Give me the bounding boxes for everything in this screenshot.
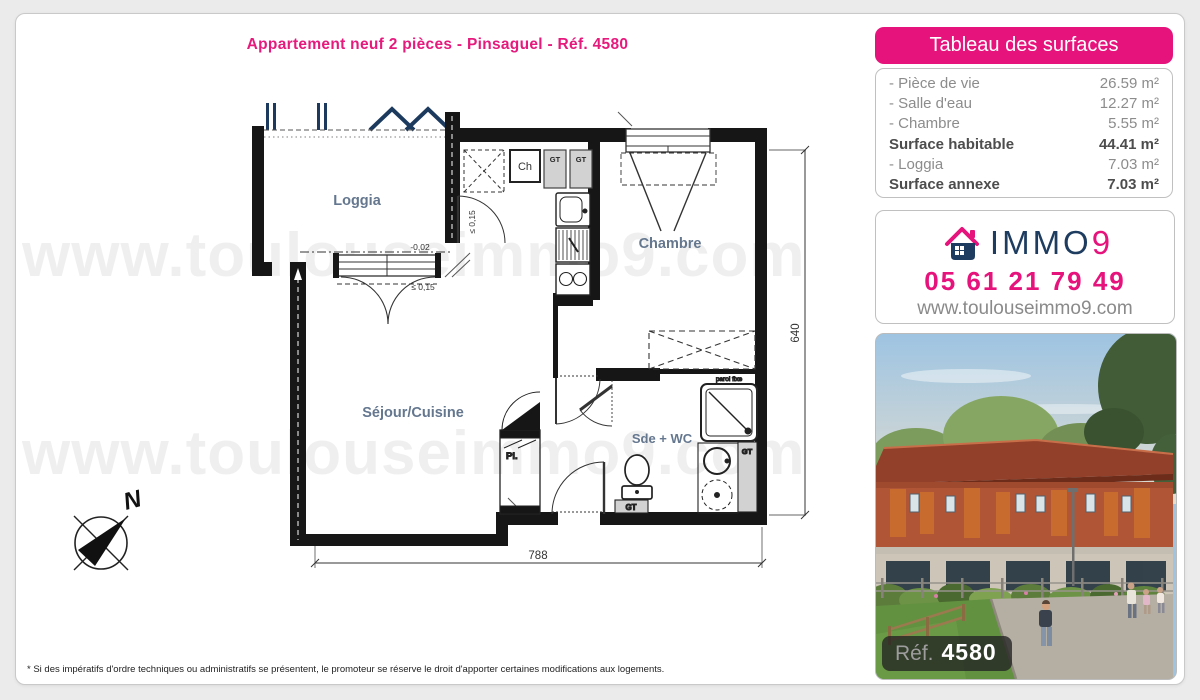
surface-row-total-habitable: Surface habitable 44.41 m² (876, 135, 1172, 155)
surface-row-value: 26.59 m² (1100, 74, 1159, 94)
north-label: N (121, 488, 145, 516)
room-label-sde: Sde + WC (632, 431, 693, 446)
surface-row-label: - Loggia (889, 155, 943, 175)
entry-hall-door (458, 196, 505, 243)
surface-row-label: - Chambre (889, 114, 960, 134)
seuil-label-vertical: ≤ 0,15 (467, 210, 477, 234)
agency-logo: IMMO9 (940, 223, 1110, 263)
corridor-doors (556, 376, 612, 426)
ref-number: 4580 (942, 639, 997, 666)
surface-row-label: Surface habitable (889, 135, 1014, 155)
surface-row-value: 7.03 m² (1107, 175, 1159, 195)
agency-phone: 05 61 21 79 49 (924, 266, 1126, 297)
surface-row-total-annexe: Surface annexe 7.03 m² (876, 175, 1172, 195)
seuil-label-horizontal: ≤ 0,15 (411, 282, 435, 292)
pl-label: Pl. (506, 451, 518, 462)
gt-label-2: GT (576, 155, 587, 164)
house-logo-icon (940, 223, 984, 263)
dim-height-label: 640 (790, 323, 802, 342)
level-label: -0,02 (410, 242, 430, 252)
ch-label: Ch (518, 161, 532, 173)
agency-website: www.toulouseimmo9.com (917, 298, 1132, 320)
surface-row-value: 7.03 m² (1108, 155, 1159, 175)
building-photo-render (876, 334, 1176, 679)
entrance-door (552, 462, 604, 514)
surface-row-label: - Salle d'eau (889, 94, 972, 114)
kitchen-fixtures (556, 193, 590, 295)
surface-row-label: Surface annexe (889, 175, 1000, 195)
page-title: Appartement neuf 2 pièces - Pinsaguel - … (15, 36, 860, 54)
surface-row: - Loggia 7.03 m² (876, 155, 1172, 175)
wall-axis-lines (298, 116, 452, 540)
surface-row-value: 5.55 m² (1108, 114, 1159, 134)
dim-width-label: 788 (528, 550, 547, 562)
surface-row: - Chambre 5.55 m² (876, 114, 1172, 134)
surfaces-table-header: Tableau des surfaces (875, 27, 1173, 64)
footnote-text: * Si des impératifs d'ordre techniques o… (27, 664, 664, 675)
surface-row: - Pièce de vie 26.59 m² (876, 74, 1172, 94)
surfaces-table: - Pièce de vie 26.59 m² - Salle d'eau 12… (875, 68, 1173, 198)
surface-row: - Salle d'eau 12.27 m² (876, 94, 1172, 114)
paroi-fixe-label: paroi fixe (716, 376, 743, 383)
compass-icon: N (68, 488, 158, 573)
gt-label-4: GT (625, 503, 636, 512)
brand-immo-text: IMMO (990, 224, 1092, 262)
surface-row-label: - Pièce de vie (889, 74, 980, 94)
agency-card: IMMO9 05 61 21 79 49 www.toulouseimmo9.c… (875, 210, 1175, 324)
surface-row-value: 44.41 m² (1099, 135, 1159, 155)
gt-label-1: GT (550, 155, 561, 164)
surface-row-value: 12.27 m² (1100, 94, 1159, 114)
closet-pl: Pl. (500, 392, 540, 514)
ref-badge: Réf. 4580 (882, 636, 1012, 671)
gt-label-3: GT (742, 447, 753, 456)
brand-9-text: 9 (1092, 224, 1110, 262)
chambre-window (621, 129, 716, 231)
room-label-loggia: Loggia (333, 193, 381, 209)
ref-label: Réf. (895, 642, 934, 666)
room-label-sejour: Séjour/Cuisine (362, 405, 464, 421)
room-label-chambre: Chambre (639, 236, 702, 252)
loggia-open-edge (264, 130, 445, 137)
technical-boxes: Ch GT GT (464, 150, 592, 192)
floor-plan: Ch GT GT (235, 90, 835, 580)
wardrobe-box (649, 331, 755, 369)
building-photo: Réf. 4580 (875, 333, 1177, 680)
loggia-railing-icon (266, 103, 450, 130)
